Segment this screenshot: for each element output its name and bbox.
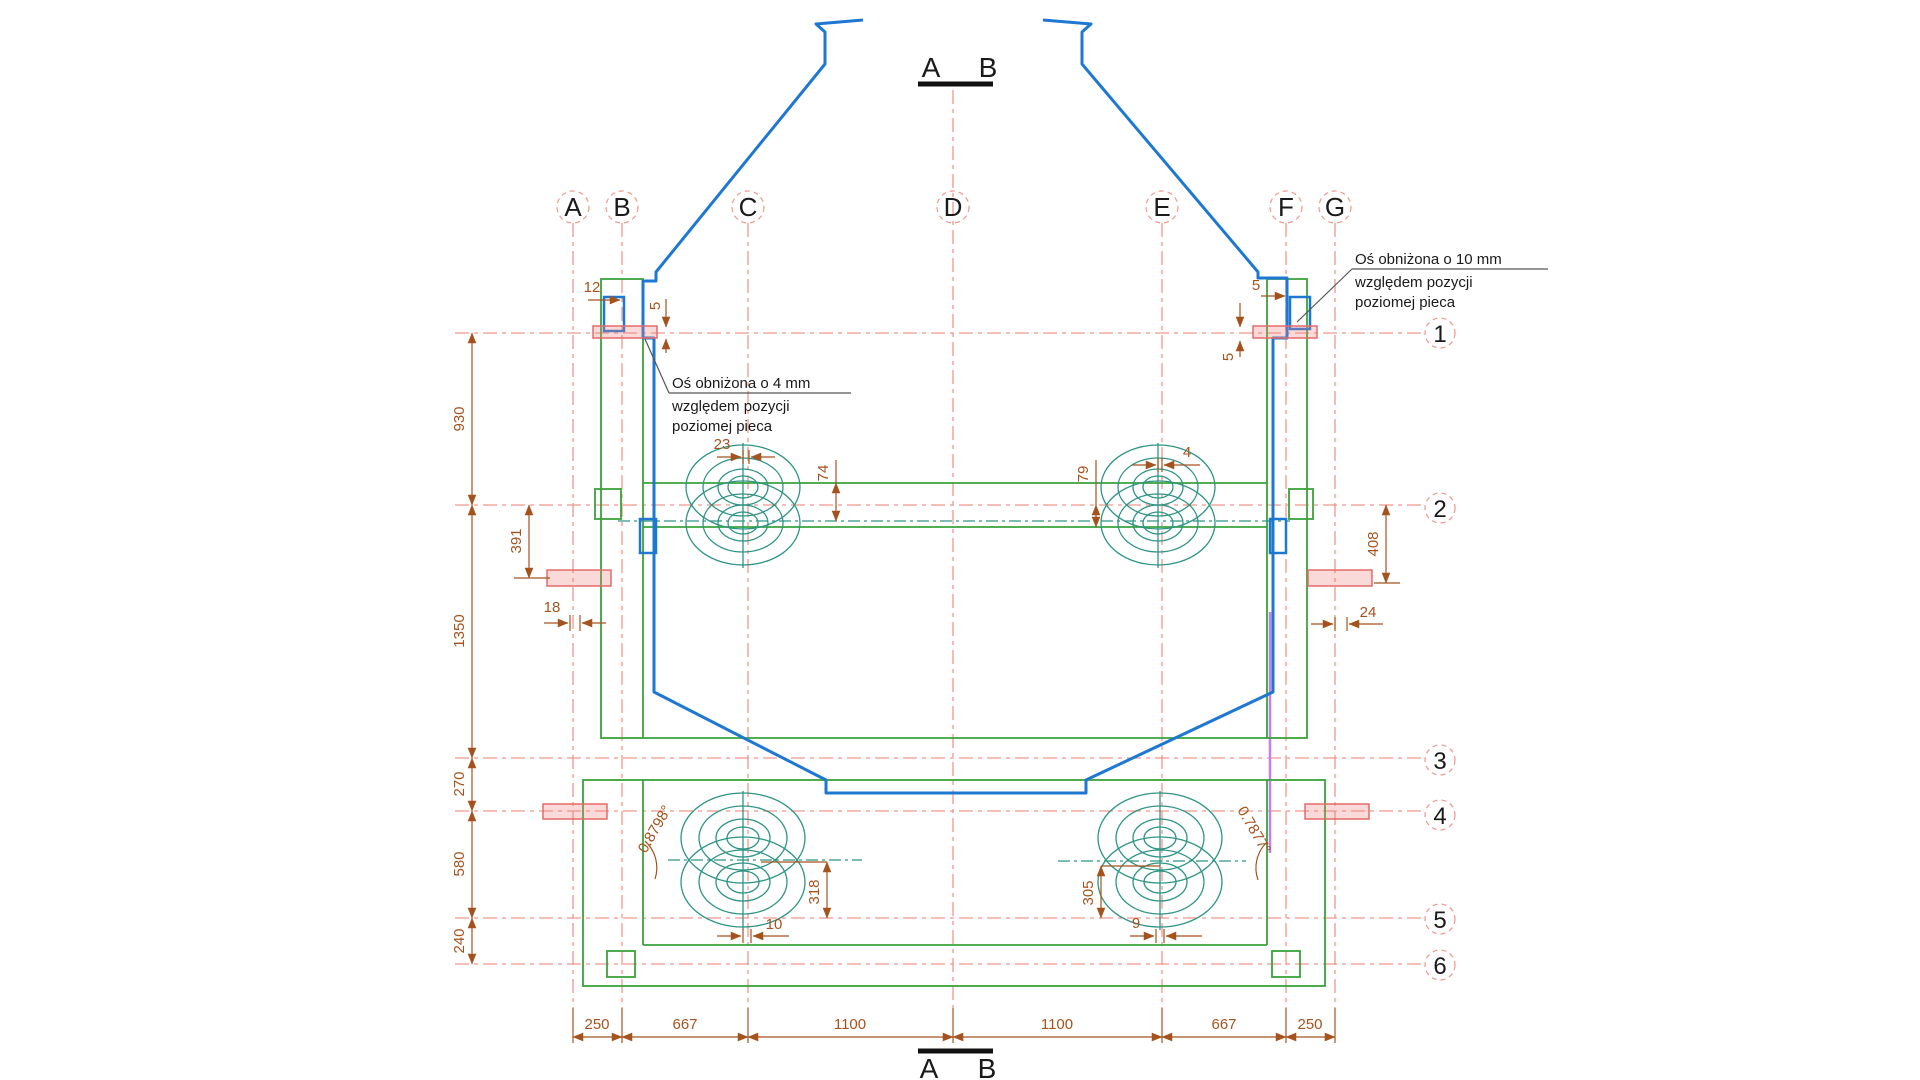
highlight-bar-mid-left <box>547 570 611 586</box>
axis-label-4: 4 <box>1433 803 1446 830</box>
section-bottom-A: A <box>920 1053 939 1080</box>
highlight-bar-row1-left <box>593 326 657 338</box>
section-top-B: B <box>979 52 998 83</box>
dim-318: 318 <box>806 879 823 904</box>
highlight-bar-row4-left <box>543 804 607 819</box>
axis-label-3: 3 <box>1433 748 1446 775</box>
dim-5-top-right-upper: 5 <box>1252 277 1260 294</box>
dim-1100-right: 1100 <box>1041 1016 1073 1033</box>
dim-930: 930 <box>451 406 468 431</box>
dim-5-top-left: 5 <box>647 302 664 310</box>
highlight-bars <box>543 326 1372 819</box>
axis-label-1: 1 <box>1433 321 1446 348</box>
axis-label-E: E <box>1153 192 1170 222</box>
dim-408: 408 <box>1365 531 1382 556</box>
axis-label-6: 6 <box>1433 953 1446 980</box>
dim-305: 305 <box>1080 880 1097 905</box>
dim-1100-left: 1100 <box>834 1016 866 1033</box>
dim-4: 4 <box>1183 444 1191 461</box>
dim-5-top-right-lower: 5 <box>1220 353 1237 361</box>
note-right-leader <box>1297 269 1352 322</box>
axis-label-F: F <box>1278 192 1294 222</box>
cad-drawing-canvas: A B C D E F G 1 2 3 4 5 6 <box>0 0 1920 1080</box>
dim-18: 18 <box>544 599 561 616</box>
axis-label-B: B <box>613 192 630 222</box>
highlight-bar-row4-right <box>1305 804 1369 819</box>
axis-label-D: D <box>944 192 963 222</box>
section-top-A: A <box>922 52 941 83</box>
dim-270: 270 <box>451 771 468 796</box>
left-rail-notch <box>595 489 621 519</box>
dim-667-right: 667 <box>1211 1016 1236 1033</box>
dim-10: 10 <box>766 916 783 933</box>
dim-angle-left: 0.8798° <box>635 803 676 856</box>
section-bottom-B: B <box>978 1053 997 1080</box>
dim-24: 24 <box>1360 604 1377 621</box>
note-right-line1: Oś obniżona o 10 mm <box>1355 251 1502 268</box>
axis-label-2: 2 <box>1433 496 1446 523</box>
right-rail-notch <box>1289 489 1313 519</box>
axis-label-C: C <box>739 192 758 222</box>
dimensions <box>472 296 1400 1043</box>
dim-250-right: 250 <box>1297 1016 1322 1033</box>
dim-580: 580 <box>451 851 468 876</box>
drawing-svg: A B C D E F G 1 2 3 4 5 6 <box>0 0 1920 1080</box>
dim-391: 391 <box>508 528 525 553</box>
dim-250-left: 250 <box>584 1016 609 1033</box>
dimension-labels: 930 1350 270 580 240 391 18 408 24 23 74… <box>451 277 1382 1033</box>
highlight-bar-row1-right <box>1253 326 1317 338</box>
rollers <box>618 443 1290 930</box>
note-left-line2: względem pozycji <box>671 398 790 415</box>
axis-label-5: 5 <box>1433 907 1446 934</box>
note-right-line2: względem pozycji <box>1354 274 1473 291</box>
dim-23: 23 <box>714 436 731 453</box>
highlight-bar-mid-right <box>1308 570 1372 586</box>
dim-12: 12 <box>584 279 601 296</box>
dim-9: 9 <box>1132 915 1140 932</box>
dim-74: 74 <box>815 465 832 482</box>
annotations: Oś obniżona o 10 mm względem pozycji poz… <box>645 251 1548 435</box>
axis-label-G: G <box>1325 192 1345 222</box>
dim-79: 79 <box>1075 466 1092 483</box>
note-right-line3: poziomej pieca <box>1355 294 1456 311</box>
dim-667-left: 667 <box>672 1016 697 1033</box>
roller-axis-lines <box>618 521 1290 861</box>
axis-label-A: A <box>564 192 582 222</box>
note-left-line1: Oś obniżona o 4 mm <box>672 375 810 392</box>
dim-1350: 1350 <box>451 614 468 647</box>
dim-240: 240 <box>451 928 468 953</box>
note-left-line3: poziomej pieca <box>672 418 773 435</box>
